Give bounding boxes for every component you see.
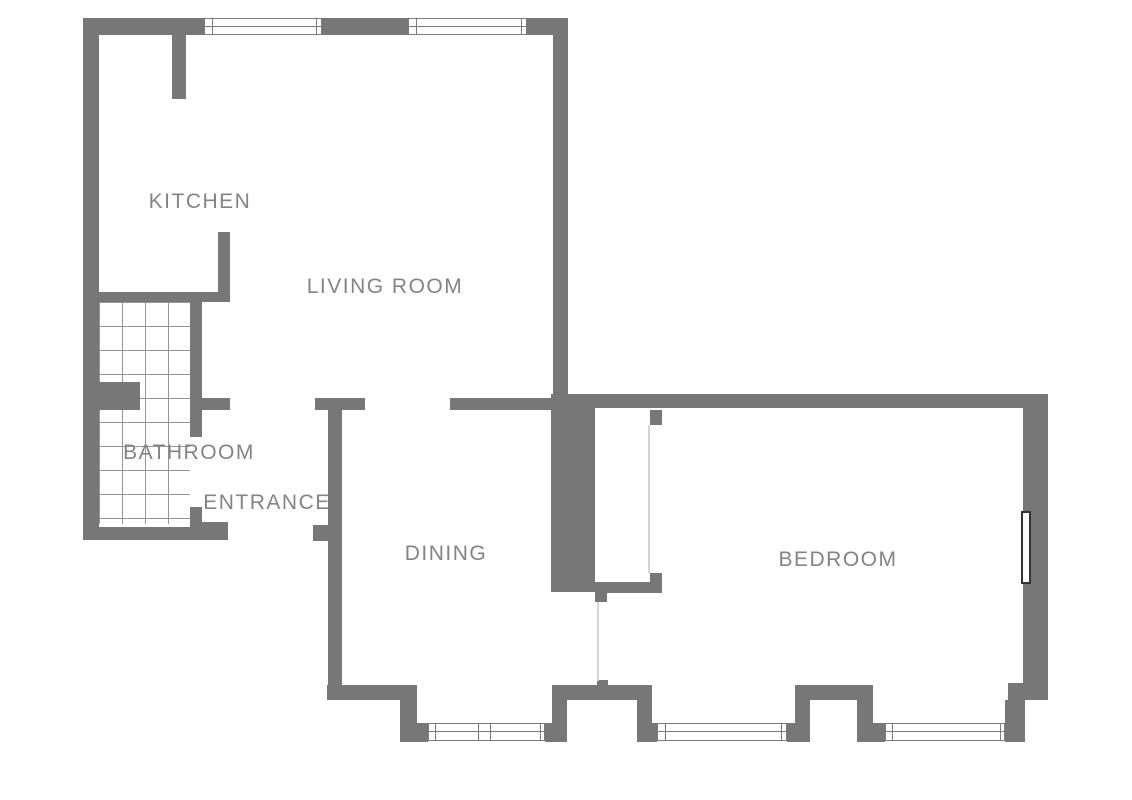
bedroom-window-right-mullion-0 (892, 724, 893, 740)
bedroom-door-bottom-bar (595, 582, 662, 593)
dining-window-mullion-1 (478, 724, 479, 740)
bedroom-window-left-glass-line (658, 731, 786, 732)
entrance-door-stub (313, 525, 328, 541)
bedroom-window-left (657, 723, 787, 741)
bedroom-door2-header (795, 685, 873, 700)
dining-window-glass-line (429, 731, 544, 732)
dining-left-wall (328, 410, 342, 685)
floorplan-canvas: KITCHENLIVING ROOMBATHROOMENTRANCEDINING… (0, 0, 1132, 800)
bathroom-top-wall (83, 292, 230, 302)
bedroom-window-right-mullion-1 (1000, 724, 1001, 740)
kitchen-window (204, 18, 322, 35)
bedroom-door2-right-leg (857, 700, 873, 742)
bedroom-window-right-glass-line (886, 731, 1004, 732)
dining-window-mullion-0 (435, 724, 436, 740)
kitchen-window-mullion-0 (212, 19, 213, 34)
bedroom-window-left-mullion-1 (781, 724, 782, 740)
top-wall-mid (322, 18, 408, 35)
bedroom-corner-leg (1005, 700, 1025, 742)
living-room-window-mullion-0 (416, 19, 417, 34)
room-label-bathroom: BATHROOM (123, 441, 255, 465)
bedroom-door-leaf-line (648, 425, 650, 573)
bedroom-window-right (885, 723, 1005, 741)
living-room-right-wall (553, 18, 568, 394)
living-room-window-glass-line (409, 26, 526, 27)
bedroom-window-left-mullion-0 (665, 724, 666, 740)
kitchen-top-stub-wall (172, 35, 186, 99)
room-label-kitchen: KITCHEN (149, 190, 252, 214)
room-label-entrance: ENTRANCE (203, 491, 331, 515)
balcony-door-right-leg (637, 700, 652, 742)
bedroom-door-jamb-top (650, 410, 662, 425)
window-stub-e (873, 723, 885, 742)
room-label-bedroom: BEDROOM (778, 548, 897, 572)
dining-bottom-wall (327, 685, 417, 700)
kitchen-window-glass-line (205, 26, 321, 27)
dining-window (428, 723, 545, 741)
bedroom-top-wall (551, 394, 1048, 408)
balcony-door-left-leg (552, 700, 567, 742)
bathroom-door-stub (202, 398, 230, 410)
bedroom-door-jamb-bottom (650, 573, 662, 583)
balcony-door-header (552, 685, 652, 700)
hall-thick-wall-block (551, 405, 595, 592)
bathroom-partition-block (99, 382, 140, 410)
window-stub-a (417, 723, 428, 742)
room-label-living-room: LIVING ROOM (307, 275, 464, 299)
entrance-bottom-wall-chunk (202, 522, 228, 540)
dining-wall-tbar (315, 398, 365, 410)
dining-bottom-leg (400, 700, 417, 742)
kitchen-window-mullion-1 (316, 19, 317, 34)
dining-window-mullion-2 (490, 724, 491, 740)
living-room-window (408, 18, 527, 35)
window-stub-b (545, 723, 552, 742)
living-room-window-mullion-1 (521, 19, 522, 34)
window-stub-d (787, 723, 795, 742)
bedroom-door-bottom-stub (595, 593, 607, 602)
bedroom-door2-left-leg (795, 700, 810, 742)
room-label-dining: DINING (405, 542, 488, 566)
bedroom-right-door-panel (1021, 511, 1031, 584)
bathroom-tile-floor (99, 302, 190, 524)
dining-window-mullion-3 (540, 724, 541, 740)
top-wall-left (83, 18, 204, 35)
left-wall (83, 18, 99, 540)
bathroom-right-wall (190, 302, 202, 437)
dining-bedroom-divider-line (597, 602, 599, 681)
